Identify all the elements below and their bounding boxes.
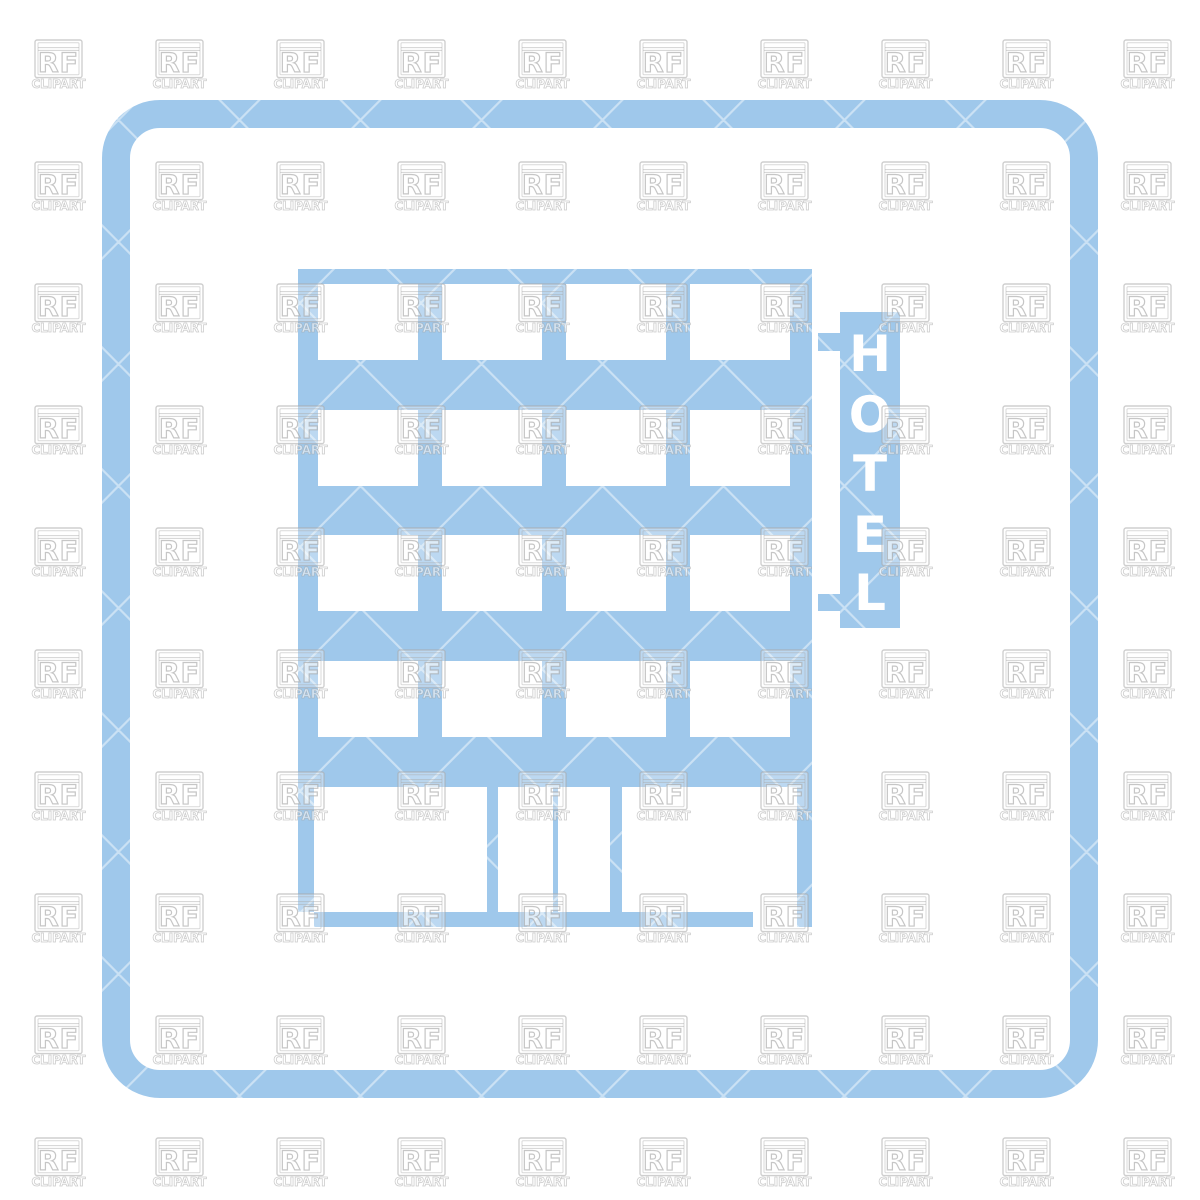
watermark-logo [516,650,570,701]
watermark-logo [879,650,933,701]
watermark-logo [637,162,691,213]
watermark-logo [879,1016,933,1067]
watermark-logo [1121,650,1175,701]
watermark-logo [1121,406,1175,457]
watermark-logo [153,894,207,945]
watermark-logo [1000,40,1054,91]
watermark-logo [1000,162,1054,213]
watermark-logo [1000,1016,1054,1067]
hotel-clipart-image: RF CLIPART [0,0,1200,1200]
watermark-logo [153,650,207,701]
watermark-logo [32,650,86,701]
watermark-logo [879,284,933,335]
watermark-logo [516,528,570,579]
watermark-logo [32,162,86,213]
watermark-logo [274,162,328,213]
watermark-logo [274,528,328,579]
watermark-logo [1121,772,1175,823]
watermark-logo [758,1016,812,1067]
watermark-logo [1000,284,1054,335]
watermark-logo [637,650,691,701]
watermark-logo [758,406,812,457]
watermark-logo [153,528,207,579]
watermark-logo [1000,406,1054,457]
watermark-logo [516,284,570,335]
watermark-logo [516,894,570,945]
watermark-logo [758,894,812,945]
watermark-logo [153,772,207,823]
watermark-logo [1000,1138,1054,1189]
watermark-logo [274,1016,328,1067]
watermark-logo [395,284,449,335]
door-storefront-pillar [610,787,622,913]
watermark-logo [879,528,933,579]
watermark-logo [395,528,449,579]
watermark-logo [1121,1016,1175,1067]
watermark-logo [516,406,570,457]
sign-bracket-bottom [818,594,840,611]
watermark-logo [274,284,328,335]
watermark-logo [32,284,86,335]
watermark-logo [32,772,86,823]
watermark-logo [1121,162,1175,213]
watermark-logo [516,162,570,213]
watermark-logo [1121,528,1175,579]
watermark-logo [395,894,449,945]
watermark-logo [153,162,207,213]
watermark-logo [274,772,328,823]
watermark-logo [637,894,691,945]
watermark-logo [637,1138,691,1189]
watermark-logo [879,406,933,457]
watermark-logo [153,40,207,91]
watermark-logo [879,1138,933,1189]
watermark-logo [1000,894,1054,945]
watermark-logo [516,1016,570,1067]
watermark-logo [395,1138,449,1189]
watermark-logo [1000,528,1054,579]
watermark-logo [153,1138,207,1189]
watermark-logo [758,40,812,91]
watermark-logo [637,1016,691,1067]
watermark-logo [758,1138,812,1189]
watermark-logo [637,406,691,457]
watermark-logo [516,1138,570,1189]
watermark-logo [879,40,933,91]
watermark-logo [637,284,691,335]
watermark-logo [879,894,933,945]
watermark-logo [637,528,691,579]
watermark-logo [32,40,86,91]
watermark-logo [1000,650,1054,701]
watermark-logo [1121,894,1175,945]
watermark-logo [516,40,570,91]
watermark-logo [758,650,812,701]
watermark-logo [32,1138,86,1189]
watermark-logo [274,406,328,457]
watermark-logo [758,284,812,335]
watermark-logo [32,528,86,579]
watermark-logo [1000,772,1054,823]
watermark-logo [32,894,86,945]
watermark-logo [516,772,570,823]
watermark-logo [1121,40,1175,91]
watermark-logo [395,162,449,213]
clipart-canvas: RF CLIPART [0,0,1200,1200]
watermark-logo [395,406,449,457]
watermark-logo [1121,284,1175,335]
watermark-logo [1121,1138,1175,1189]
watermark-logo [32,1016,86,1067]
watermark-logo [153,406,207,457]
watermark-logo [637,40,691,91]
storefront-door-pillar [487,787,498,913]
watermark-logo [153,1016,207,1067]
watermark-logo [879,772,933,823]
watermark-logo [395,772,449,823]
watermark-logo [758,772,812,823]
watermark-logo [758,162,812,213]
watermark-logo [274,650,328,701]
watermark-logo [274,1138,328,1189]
watermark-logo [395,650,449,701]
watermark-logo [153,284,207,335]
watermark-logo [637,772,691,823]
watermark-logo [274,894,328,945]
watermark-logo [395,1016,449,1067]
watermark-logo [879,162,933,213]
watermark-logo [395,40,449,91]
watermark-logo [274,40,328,91]
watermark-logo [32,406,86,457]
watermark-logo [758,528,812,579]
